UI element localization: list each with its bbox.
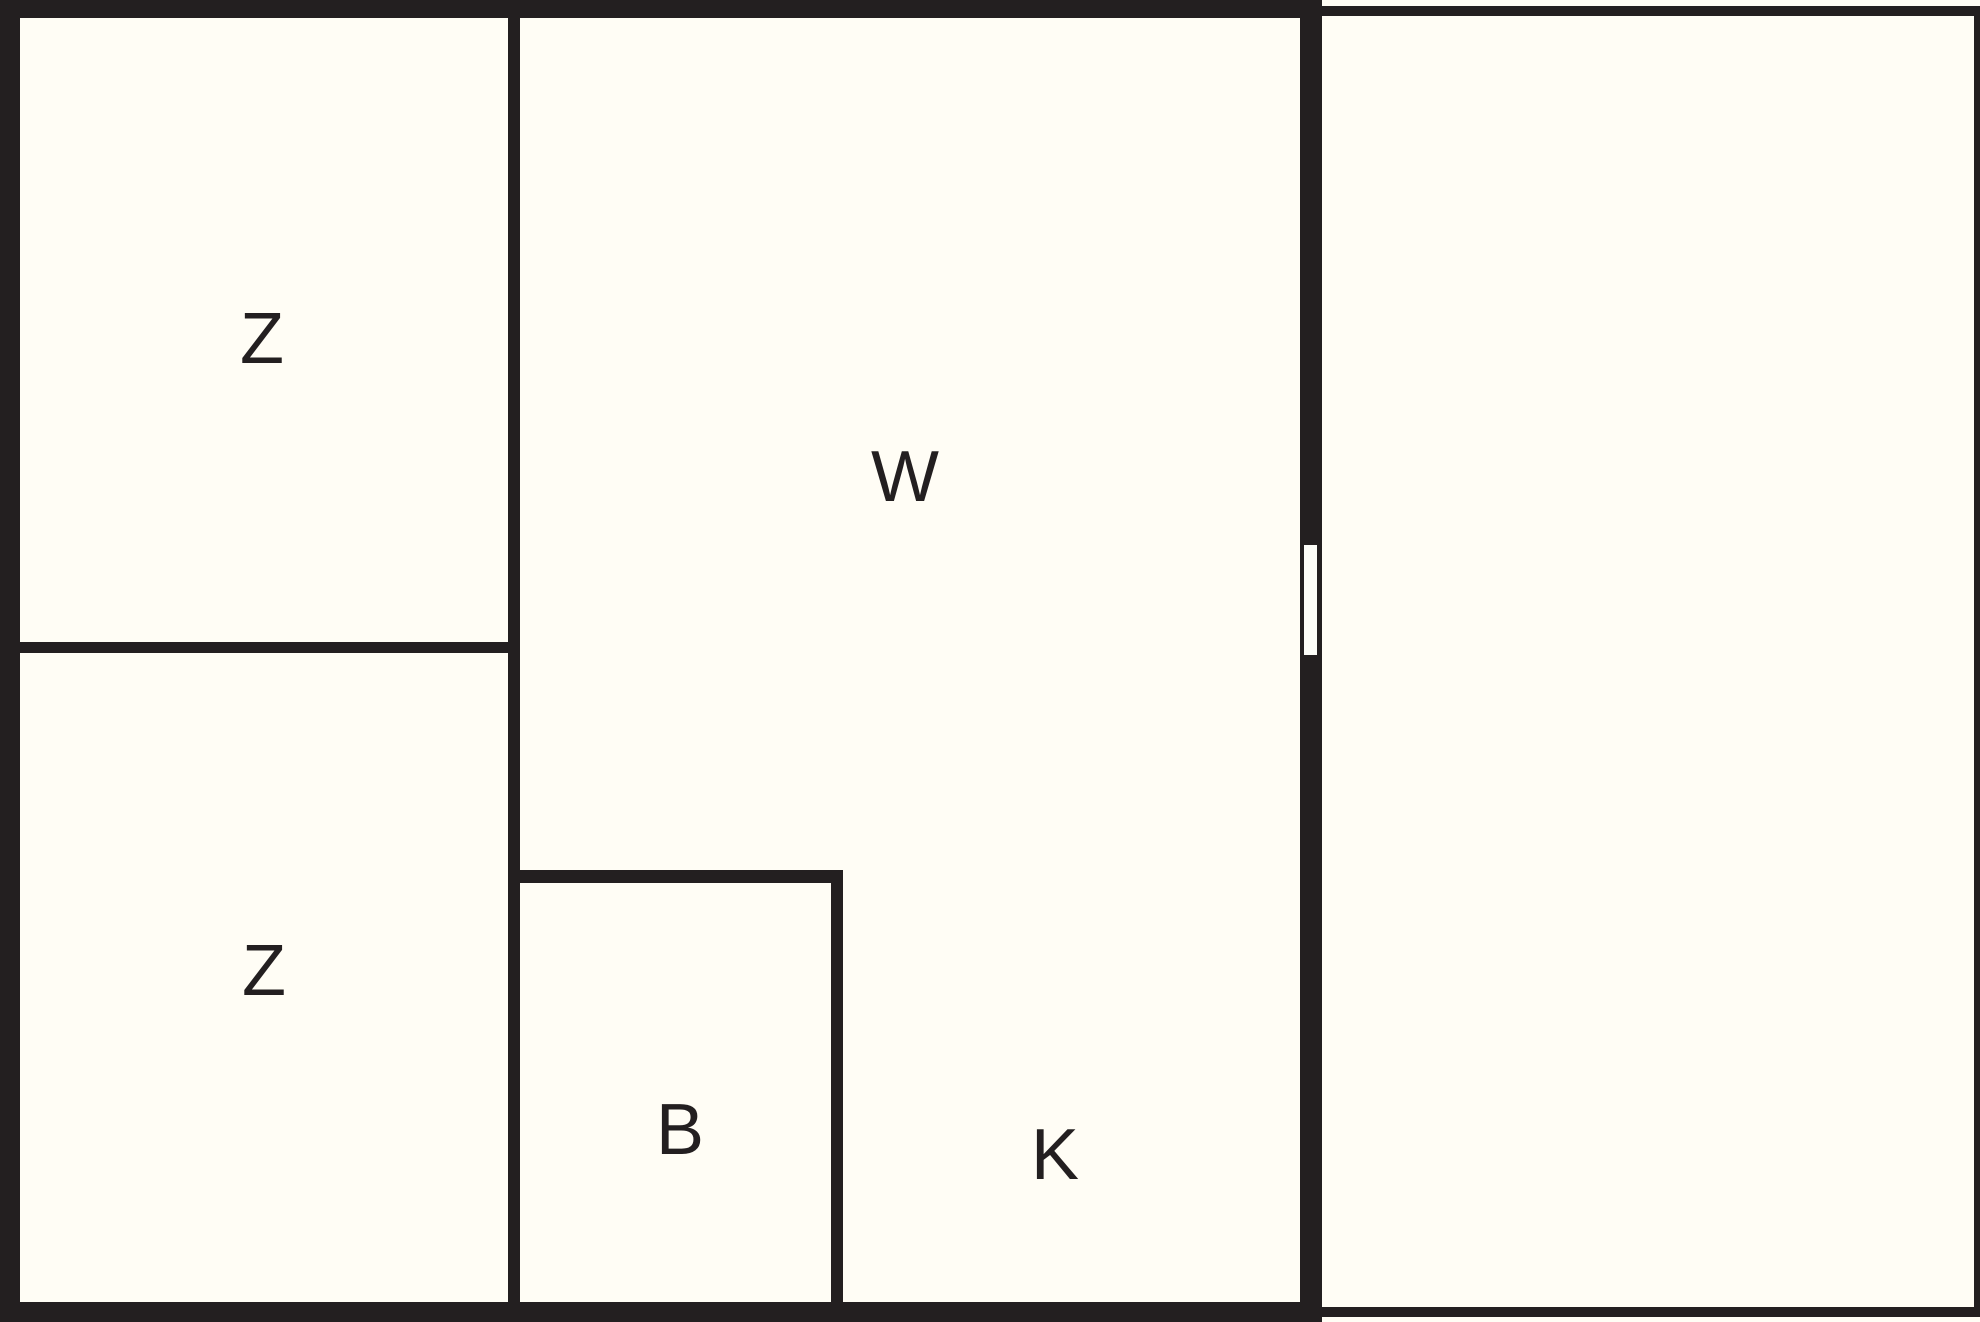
outer-wall-bottom bbox=[0, 1302, 1322, 1322]
wall-b-right bbox=[831, 870, 843, 1302]
wall-b-top bbox=[508, 870, 843, 883]
room-label-k: K bbox=[1031, 1119, 1079, 1191]
room-label-z-top: Z bbox=[240, 303, 284, 375]
room-label-w: W bbox=[871, 441, 939, 513]
room-label-z-bottom: Z bbox=[242, 935, 286, 1007]
right-room-top-wall bbox=[1322, 6, 1980, 16]
right-room-right-wall bbox=[1974, 6, 1980, 1317]
interior-wall-vertical bbox=[508, 18, 520, 1302]
room-label-b: B bbox=[656, 1094, 704, 1166]
floor-plan: Z Z W B K bbox=[0, 0, 1980, 1322]
outer-wall-top bbox=[0, 0, 1322, 18]
right-room-bottom-wall bbox=[1322, 1307, 1980, 1317]
door-opening bbox=[1304, 545, 1317, 655]
wall-z-divider bbox=[20, 642, 508, 653]
room-right bbox=[1322, 16, 1974, 1307]
middle-wall bbox=[1300, 0, 1322, 1322]
outer-wall-left bbox=[0, 0, 20, 1322]
